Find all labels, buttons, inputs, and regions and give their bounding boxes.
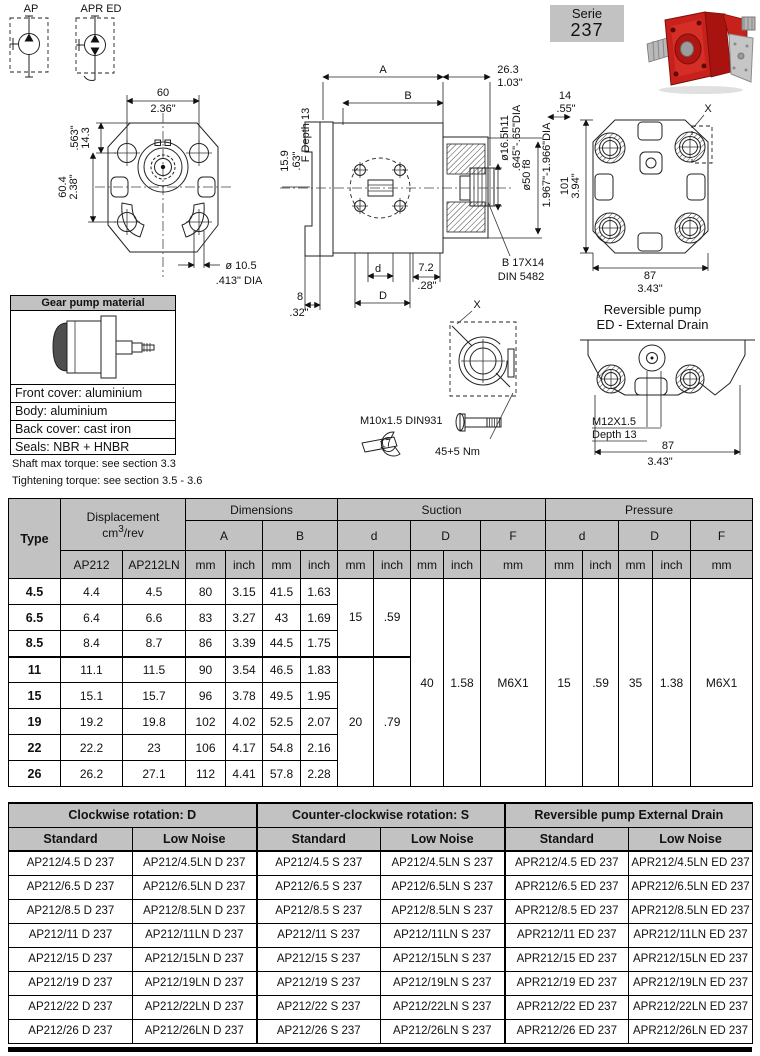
cell: 83 <box>186 605 226 631</box>
cell: 8.5 <box>9 631 61 657</box>
cell: APR212/22 ED 237 <box>505 995 629 1019</box>
cell: APR212/15 ED 237 <box>505 947 629 971</box>
unit-header: inch <box>444 551 481 579</box>
cell: AP212/4.5LN D 237 <box>133 851 257 875</box>
serie-badge: Serie 237 <box>550 5 624 42</box>
cell: 15 <box>546 579 583 787</box>
cell: 15 <box>9 683 61 709</box>
cell: 80 <box>186 579 226 605</box>
cell: APR212/11 ED 237 <box>505 923 629 947</box>
cell: 4.02 <box>226 709 263 735</box>
cell: 106 <box>186 735 226 761</box>
cell: APR212/11LN ED 237 <box>629 923 753 947</box>
dim-hole-dia: ø 10.5 <box>225 260 256 272</box>
cell: 23 <box>123 735 186 761</box>
cell: 1.95 <box>301 683 338 709</box>
cell: AP212/15 S 237 <box>257 947 381 971</box>
cell: 3.54 <box>226 657 263 683</box>
cell: 19.2 <box>61 709 123 735</box>
table-row: AP212/8.5 D 237 AP212/8.5LN D 237 AP212/… <box>9 899 753 923</box>
torque-label: 45+5 Nm <box>435 446 480 458</box>
cell: 4.4 <box>61 579 123 605</box>
cell: .79 <box>374 657 411 787</box>
dim-hole-dia-in: .413" DIA <box>216 275 263 287</box>
cell: 86 <box>186 631 226 657</box>
pump-section-icon <box>11 311 175 384</box>
table-row: AP212/19 D 237 AP212/19LN D 237 AP212/19… <box>9 971 753 995</box>
group-header-clockwise: Clockwise rotation: D <box>9 803 257 827</box>
cell: 4.41 <box>226 761 263 787</box>
f-depth-label: F Depth 13 <box>300 108 312 162</box>
col-header-suction-dd: D <box>411 521 481 551</box>
table-row: Clockwise rotation: D Counter-clockwise … <box>9 803 753 827</box>
note-tightening-torque: Tightening torque: see section 3.5 - 3.6 <box>12 475 202 487</box>
cell: 4.17 <box>226 735 263 761</box>
cell: .59 <box>374 579 411 657</box>
table-row: Standard Low Noise Standard Low Noise St… <box>9 827 753 851</box>
x-detail-label: X <box>473 299 481 311</box>
cell: 57.8 <box>263 761 301 787</box>
x-detail-ref-label: X <box>704 103 712 115</box>
cell: 3.39 <box>226 631 263 657</box>
unit-header: mm <box>338 551 374 579</box>
col-header-pressure: Pressure <box>546 499 753 521</box>
bolt-spec-label: M10x1.5 DIN931 <box>360 415 443 427</box>
cell: 96 <box>186 683 226 709</box>
unit-header: inch <box>583 551 619 579</box>
col-header-suction-d: d <box>338 521 411 551</box>
cell: 20 <box>338 657 374 787</box>
spline-type-label: B 17X14 <box>502 257 544 269</box>
table-row: AP212 AP212LN mm inch mm inch mm inch mm… <box>9 551 753 579</box>
dim-7-2: 7.2 <box>418 262 433 274</box>
back-view-drawing: X 101 3.94" 87 3.4 <box>560 90 760 295</box>
unit-header: mm <box>186 551 226 579</box>
dim-14-3: 14.3 <box>80 127 92 148</box>
cell: APR212/6.5LN ED 237 <box>629 875 753 899</box>
cell: 44.5 <box>263 631 301 657</box>
cell: 1.83 <box>301 657 338 683</box>
sub-header: Low Noise <box>133 827 257 851</box>
group-header-counter-clockwise: Counter-clockwise rotation: S <box>257 803 505 827</box>
cell: 1.58 <box>444 579 481 787</box>
dim-101-in: 3.94" <box>570 173 582 198</box>
dimension-table: Type Displacement cm3/rev Dimensions Suc… <box>8 498 753 787</box>
cell: 2.16 <box>301 735 338 761</box>
sub-header: Low Noise <box>381 827 505 851</box>
apred-symbol-label: APR ED <box>81 3 122 15</box>
material-row-front-cover: Front cover: aluminium <box>11 385 175 403</box>
col-header-pressure-f: F <box>691 521 753 551</box>
dim-7-2-in: .28" <box>417 280 436 292</box>
unit-header: mm <box>411 551 444 579</box>
datasheet-page: AP APR ED Serie 237 <box>0 0 760 1056</box>
table-row: 4.5 4.4 4.5 80 3.15 41.5 1.63 15 .59 40 … <box>9 579 753 605</box>
cell: APR212/8.5 ED 237 <box>505 899 629 923</box>
cell: 43 <box>263 605 301 631</box>
cell: AP212/4.5 S 237 <box>257 851 381 875</box>
dim-60: 60 <box>157 87 169 99</box>
cell: 90 <box>186 657 226 683</box>
x-detail-drawing: X M10x1.5 DIN931 17 45+5 Nm <box>350 293 565 473</box>
cell: 1.75 <box>301 631 338 657</box>
sub-header: Low Noise <box>629 827 753 851</box>
note-shaft-torque: Shaft max torque: see section 3.3 <box>12 458 176 470</box>
col-header-displacement: Displacement cm3/rev <box>61 499 186 551</box>
cell: AP212/6.5LN S 237 <box>381 875 505 899</box>
cell: 41.5 <box>263 579 301 605</box>
cell: AP212/26LN S 237 <box>381 1019 505 1043</box>
reversible-pump-title: Reversible pump ED - External Drain <box>575 302 730 332</box>
reversible-title-line2: ED - External Drain <box>575 317 730 332</box>
cell: APR212/4.5 ED 237 <box>505 851 629 875</box>
col-header-b: B <box>263 521 338 551</box>
wrench-size-label: 17 <box>379 437 393 451</box>
back-bolt-hole <box>675 213 705 243</box>
dim-8: 8 <box>297 291 303 303</box>
cell: AP212/19LN S 237 <box>381 971 505 995</box>
unit-header: mm <box>546 551 583 579</box>
cell: AP212/15 D 237 <box>9 947 133 971</box>
cell: 22 <box>9 735 61 761</box>
sub-header: Standard <box>505 827 629 851</box>
front-view-drawing: 60 2.36" 14.3 .563" 60.4 2.38" ø 10.5 .4… <box>60 85 310 303</box>
dim-87-in: 3.43" <box>637 283 662 295</box>
cell: APR212/26 ED 237 <box>505 1019 629 1043</box>
cell: 1.38 <box>653 579 691 787</box>
back-bolt-hole <box>595 133 625 163</box>
cell: 1.63 <box>301 579 338 605</box>
sub-header: Standard <box>9 827 133 851</box>
dim-d-label: d <box>375 263 381 275</box>
cell: 6.4 <box>61 605 123 631</box>
col-header-pressure-dd: D <box>619 521 691 551</box>
sub-header: Standard <box>257 827 381 851</box>
displacement-label: Displacement <box>61 510 185 524</box>
cell: AP212/8.5 D 237 <box>9 899 133 923</box>
cell: AP212/8.5LN S 237 <box>381 899 505 923</box>
unit-header: mm <box>263 551 301 579</box>
cell: .59 <box>583 579 619 787</box>
cell: 19.8 <box>123 709 186 735</box>
pump-photo <box>645 4 757 98</box>
cell: AP212/6.5 S 237 <box>257 875 381 899</box>
order-code-table: Clockwise rotation: D Counter-clockwise … <box>8 802 753 1044</box>
cell: APR212/6.5 ED 237 <box>505 875 629 899</box>
cell: APR212/19 ED 237 <box>505 971 629 995</box>
cell: 40 <box>411 579 444 787</box>
bolt-icon <box>456 414 501 432</box>
dim-60-in: 2.36" <box>150 103 175 115</box>
cell: 11.1 <box>61 657 123 683</box>
cell: AP212/22 D 237 <box>9 995 133 1019</box>
cell: M6X1 <box>481 579 546 787</box>
material-row-back-cover: Back cover: cast iron <box>11 421 175 439</box>
serie-number: 237 <box>550 21 624 40</box>
reversible-bolt-hole <box>676 365 704 393</box>
col-header-a: A <box>186 521 263 551</box>
cell: 46.5 <box>263 657 301 683</box>
thread-label: M12X1.5 <box>592 416 636 428</box>
cell: AP212/19 S 237 <box>257 971 381 995</box>
cell: M6X1 <box>691 579 753 787</box>
cell: AP212/4.5 D 237 <box>9 851 133 875</box>
cell: AP212/26 D 237 <box>9 1019 133 1043</box>
cell: 52.5 <box>263 709 301 735</box>
material-box-figure <box>11 311 175 385</box>
cell: APR212/8.5LN ED 237 <box>629 899 753 923</box>
col-header-suction: Suction <box>338 499 546 521</box>
back-bolt-hole <box>675 132 705 162</box>
table-row: AP212/26 D 237 AP212/26LN D 237 AP212/26… <box>9 1019 753 1043</box>
wrench-icon: 17 <box>362 432 400 456</box>
cell: AP212/22LN S 237 <box>381 995 505 1019</box>
pilot-dia-in-label: 1.967"-1.966"DIA <box>541 122 553 208</box>
cell: 3.15 <box>226 579 263 605</box>
cell: 49.5 <box>263 683 301 709</box>
col-header-pressure-d: d <box>546 521 619 551</box>
dim-60-4-in: 2.38" <box>68 174 80 199</box>
unit-header: mm <box>619 551 653 579</box>
cell: AP212/15LN D 237 <box>133 947 257 971</box>
cell: 2.28 <box>301 761 338 787</box>
cell: AP212/6.5 D 237 <box>9 875 133 899</box>
table-row: AP212/11 D 237 AP212/11LN D 237 AP212/11… <box>9 923 753 947</box>
cell: APR212/4.5LN ED 237 <box>629 851 753 875</box>
depth-label: Depth 13 <box>592 429 637 441</box>
cell: 102 <box>186 709 226 735</box>
displacement-unit: cm3/rev <box>61 524 185 540</box>
col-header-dimensions: Dimensions <box>186 499 338 521</box>
cell: 6.6 <box>123 605 186 631</box>
dim-a-label: A <box>379 64 387 76</box>
cell: AP212/8.5LN D 237 <box>133 899 257 923</box>
cell: AP212/22 S 237 <box>257 995 381 1019</box>
cell: 27.1 <box>123 761 186 787</box>
rev-dim-87: 87 <box>662 440 674 452</box>
dim-87: 87 <box>644 270 656 282</box>
cell: AP212/11LN S 237 <box>381 923 505 947</box>
cell: 3.78 <box>226 683 263 709</box>
pilot-dia-label: ø50 f8 <box>521 159 533 190</box>
back-bolt-hole <box>595 213 625 243</box>
unit-header: inch <box>374 551 411 579</box>
cell: APR212/19LN ED 237 <box>629 971 753 995</box>
cell: 22.2 <box>61 735 123 761</box>
spline-std-label: DIN 5482 <box>498 271 544 283</box>
col-header-type: Type <box>9 499 61 579</box>
cell: 54.8 <box>263 735 301 761</box>
cell: 4.5 <box>9 579 61 605</box>
reversible-bolt-hole <box>597 365 625 393</box>
table-row: AP212/22 D 237 AP212/22LN D 237 AP212/22… <box>9 995 753 1019</box>
cell: APR212/26LN ED 237 <box>629 1019 753 1043</box>
cell: AP212/11 S 237 <box>257 923 381 947</box>
dim-b-label: B <box>404 90 411 102</box>
cell: 11 <box>9 657 61 683</box>
rev-dim-87-in: 3.43" <box>647 456 672 468</box>
material-row-seals: Seals: NBR + HNBR <box>11 439 175 457</box>
unit-header: inch <box>653 551 691 579</box>
col-header-ap212: AP212 <box>61 551 123 579</box>
cell: AP212/26 S 237 <box>257 1019 381 1043</box>
dim-26-3: 26.3 <box>497 64 518 76</box>
material-box-title: Gear pump material <box>11 296 175 311</box>
cell: 8.7 <box>123 631 186 657</box>
material-box: Gear pump material Front cover: aluminiu… <box>10 295 176 455</box>
unit-header: inch <box>301 551 338 579</box>
cell: AP212/19 D 237 <box>9 971 133 995</box>
cell: 4.5 <box>123 579 186 605</box>
cell: AP212/11LN D 237 <box>133 923 257 947</box>
table-row: Type Displacement cm3/rev Dimensions Suc… <box>9 499 753 521</box>
cell: 1.69 <box>301 605 338 631</box>
unit-header: mm <box>481 551 546 579</box>
cell: AP212/4.5LN S 237 <box>381 851 505 875</box>
material-row-body: Body: aluminium <box>11 403 175 421</box>
cell: 112 <box>186 761 226 787</box>
cell: 15.1 <box>61 683 123 709</box>
col-header-ap212ln: AP212LN <box>123 551 186 579</box>
page-bottom-rule <box>8 1047 752 1052</box>
group-header-reversible: Reversible pump External Drain <box>505 803 753 827</box>
cell: 35 <box>619 579 653 787</box>
unit-header: inch <box>226 551 263 579</box>
reversible-title-line1: Reversible pump <box>575 302 730 317</box>
col-header-suction-f: F <box>481 521 546 551</box>
ap-symbol-label: AP <box>24 3 39 15</box>
cell: 15 <box>338 579 374 657</box>
cell: 8.4 <box>61 631 123 657</box>
serie-label: Serie <box>550 7 624 21</box>
external-drain-symbol <box>84 76 95 81</box>
cell: APR212/22LN ED 237 <box>629 995 753 1019</box>
table-row: AP212/4.5 D 237 AP212/4.5LN D 237 AP212/… <box>9 851 753 875</box>
cell: 11.5 <box>123 657 186 683</box>
hydraulic-symbols: AP APR ED <box>5 0 145 92</box>
cell: 15.7 <box>123 683 186 709</box>
table-row: AP212/6.5 D 237 AP212/6.5LN D 237 AP212/… <box>9 875 753 899</box>
cell: 2.07 <box>301 709 338 735</box>
cell: 26 <box>9 761 61 787</box>
cell: 3.27 <box>226 605 263 631</box>
reversible-pump-drawing: M12X1.5 Depth 13 87 3.43" <box>580 333 760 483</box>
dim-8-in: .32" <box>289 307 308 319</box>
dim-14-3-in: .563" <box>69 125 81 150</box>
cell: AP212/8.5 S 237 <box>257 899 381 923</box>
cell: AP212/11 D 237 <box>9 923 133 947</box>
dim-26-3-in: 1.03" <box>497 77 522 89</box>
cell: AP212/22LN D 237 <box>133 995 257 1019</box>
cell: 6.5 <box>9 605 61 631</box>
cell: 19 <box>9 709 61 735</box>
cell: 26.2 <box>61 761 123 787</box>
cell: APR212/15LN ED 237 <box>629 947 753 971</box>
cell: AP212/26LN D 237 <box>133 1019 257 1043</box>
table-row: AP212/15 D 237 AP212/15LN D 237 AP212/15… <box>9 947 753 971</box>
cell: AP212/15LN S 237 <box>381 947 505 971</box>
unit-header: mm <box>691 551 753 579</box>
cell: AP212/6.5LN D 237 <box>133 875 257 899</box>
cell: AP212/19LN D 237 <box>133 971 257 995</box>
